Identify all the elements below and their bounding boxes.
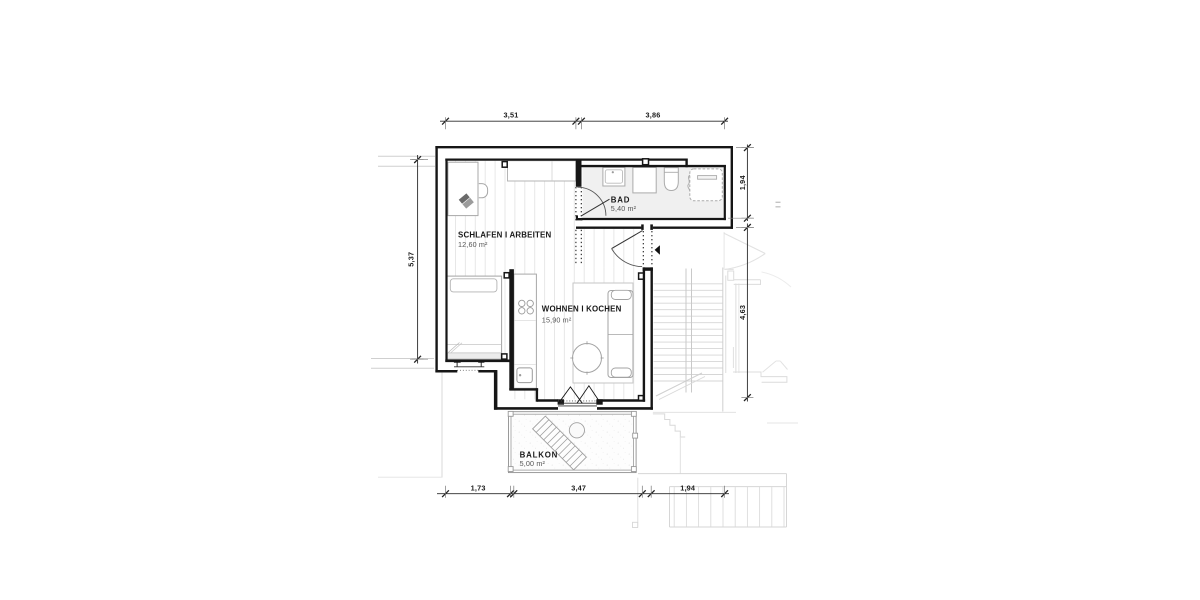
svg-text:SCHLAFEN I ARBEITEN: SCHLAFEN I ARBEITEN bbox=[458, 231, 551, 240]
svg-text:1,94: 1,94 bbox=[680, 483, 696, 492]
svg-text:5,40 m²: 5,40 m² bbox=[611, 204, 637, 213]
svg-text:BAD: BAD bbox=[611, 195, 631, 204]
svg-text:5,37: 5,37 bbox=[406, 252, 415, 267]
svg-text:1,94: 1,94 bbox=[738, 175, 747, 191]
svg-text:WOHNEN I KOCHEN: WOHNEN I KOCHEN bbox=[542, 305, 622, 314]
svg-text:1,73: 1,73 bbox=[471, 483, 486, 492]
svg-text:3,86: 3,86 bbox=[645, 111, 660, 120]
svg-text:3,51: 3,51 bbox=[503, 111, 518, 120]
svg-text:5,00 m²: 5,00 m² bbox=[520, 459, 546, 468]
svg-text:3,47: 3,47 bbox=[571, 483, 586, 492]
svg-text:4,63: 4,63 bbox=[738, 305, 747, 320]
svg-text:15,90 m²: 15,90 m² bbox=[542, 316, 572, 325]
svg-text:12,60 m²: 12,60 m² bbox=[458, 240, 488, 249]
